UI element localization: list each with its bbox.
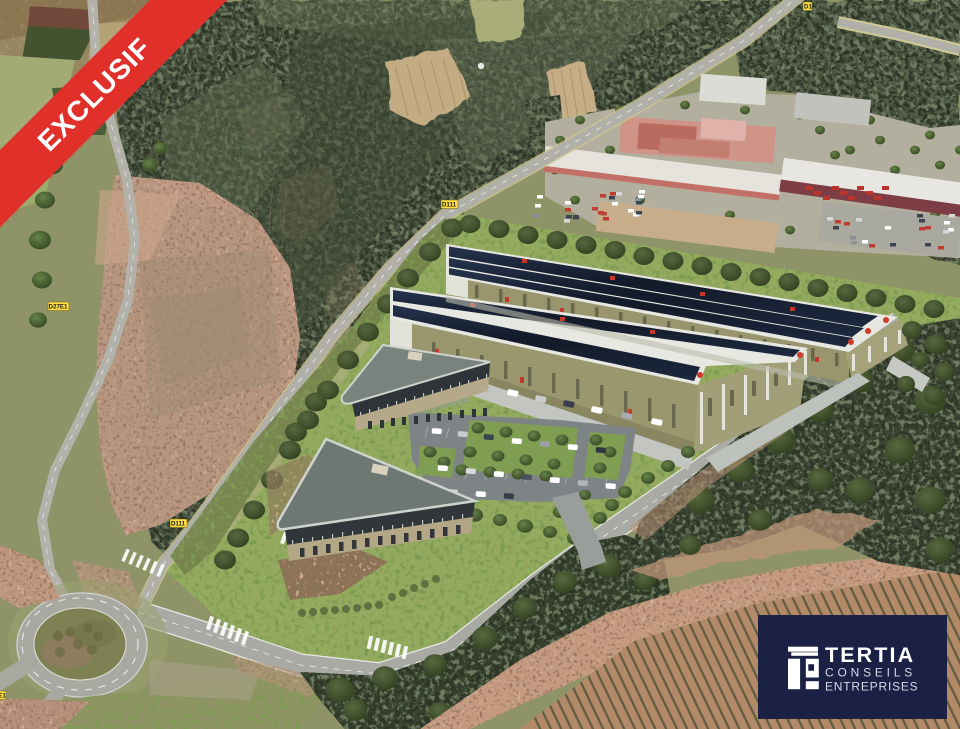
svg-text:E1: E1: [0, 693, 6, 700]
svg-text:TERTIA: TERTIA: [825, 643, 915, 667]
svg-text:D1: D1: [804, 4, 812, 11]
svg-text:D111: D111: [442, 202, 457, 209]
svg-text:CONSEILS: CONSEILS: [825, 666, 916, 680]
svg-text:ENTREPRISES: ENTREPRISES: [825, 680, 919, 694]
svg-text:D27E1: D27E1: [49, 304, 68, 311]
svg-text:D111: D111: [171, 521, 186, 528]
